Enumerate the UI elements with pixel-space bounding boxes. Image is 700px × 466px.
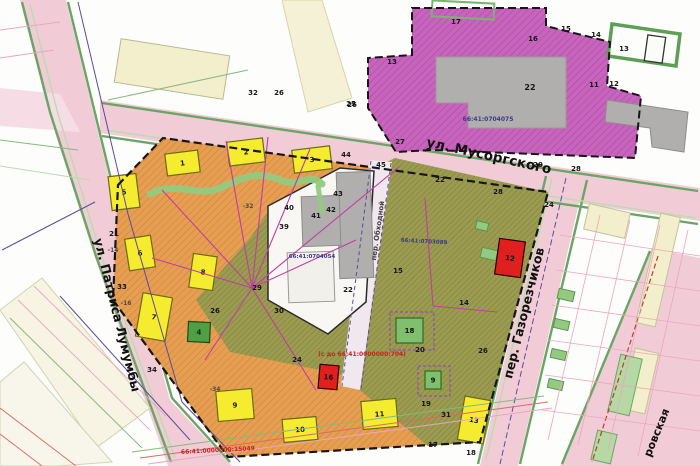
- map-number-15-5: 15: [561, 25, 571, 33]
- map-number-16-4: 16: [528, 35, 538, 43]
- map-number-15-39: 15: [393, 267, 403, 275]
- map-number-27-2: 27: [395, 138, 405, 146]
- building-9-7: 9: [216, 388, 254, 421]
- map-number-20-30: 20: [415, 346, 425, 354]
- map-number-22-41: 22: [524, 83, 535, 92]
- cadastral-annotation-1: 66:41:0704054: [289, 254, 336, 260]
- map-number-26-13: 26: [274, 89, 284, 97]
- map-number-24-29: 24: [292, 356, 302, 364]
- building-4-13: 4: [187, 321, 210, 342]
- cadastral-annotation-0: 66:41:0704075: [463, 116, 514, 123]
- map-number-26-14: 26: [347, 101, 357, 109]
- building-5-3: 5: [108, 173, 140, 210]
- map-number-42-18: 42: [326, 206, 336, 214]
- map-number-31-34: 31: [441, 411, 451, 419]
- map-number-30-27: 30: [274, 307, 284, 315]
- map-number-32-12: 32: [248, 89, 258, 97]
- map-number-13-7: 13: [619, 45, 629, 53]
- building-number: 18: [405, 327, 415, 335]
- map-number-44-15: 44: [341, 151, 351, 159]
- map-number-40-20: 40: [284, 204, 294, 212]
- map-number-21-22: 21: [109, 230, 119, 238]
- building-16-12: 16: [318, 364, 339, 390]
- building-18-14: 18: [396, 318, 423, 343]
- zoning-map-svg: 1235687910111312164189132527171615141311…: [0, 0, 700, 466]
- map-canvas: 1235687910111312164189132527171615141311…: [0, 0, 700, 466]
- building-number: 9: [232, 401, 238, 409]
- building-6-4: 6: [125, 235, 156, 271]
- building-number: 4: [196, 328, 201, 336]
- building-number: 16: [323, 373, 334, 382]
- map-number-22-40: 22: [435, 176, 445, 184]
- map-number-45-16: 45: [376, 161, 386, 169]
- building-number: 13: [468, 416, 479, 426]
- map-number-12-9: 12: [609, 80, 619, 88]
- building-number: 12: [505, 254, 516, 263]
- map-number-26-28: 26: [210, 307, 220, 315]
- building-9-15: 9: [425, 371, 441, 389]
- building-8-5: 8: [189, 253, 217, 290]
- map-number-29-25: 29: [252, 284, 262, 292]
- map-number-28-11: 28: [571, 165, 581, 173]
- cadastral-annotation-3: (с до 66:41:0000000:704): [318, 351, 406, 358]
- shape-topright-small-bldg: [644, 35, 665, 63]
- building-number: 9: [431, 377, 436, 385]
- map-number-14-6: 14: [591, 31, 601, 39]
- shape-central-bldg-a: [336, 171, 374, 278]
- map-number-18-36: 18: [466, 449, 476, 457]
- map-number-11-8: 11: [589, 81, 599, 89]
- building-1-0: 1: [165, 150, 200, 176]
- map-number-17-3: 17: [451, 18, 461, 26]
- map-number-19-31: 19: [421, 400, 431, 408]
- map-number-41-19: 41: [311, 212, 321, 220]
- map-number-24-38: 24: [544, 201, 554, 209]
- map-number-43-17: 43: [333, 190, 343, 198]
- map-number--32-42: -32: [243, 203, 254, 210]
- map-number-26-33: 26: [478, 347, 488, 355]
- map-number-13-0: 13: [387, 58, 397, 66]
- map-number-14-32: 14: [459, 299, 469, 307]
- map-number-34-24: 34: [147, 366, 157, 374]
- building-12-11: 12: [495, 238, 526, 277]
- map-number-17-35: 17: [428, 441, 438, 449]
- building-3-2: 3: [292, 146, 333, 173]
- map-number-39-21: 39: [279, 223, 289, 231]
- map-number-22-26: 22: [343, 286, 353, 294]
- map-number-28-37: 28: [493, 188, 503, 196]
- map-number--34-44: -34: [210, 386, 221, 393]
